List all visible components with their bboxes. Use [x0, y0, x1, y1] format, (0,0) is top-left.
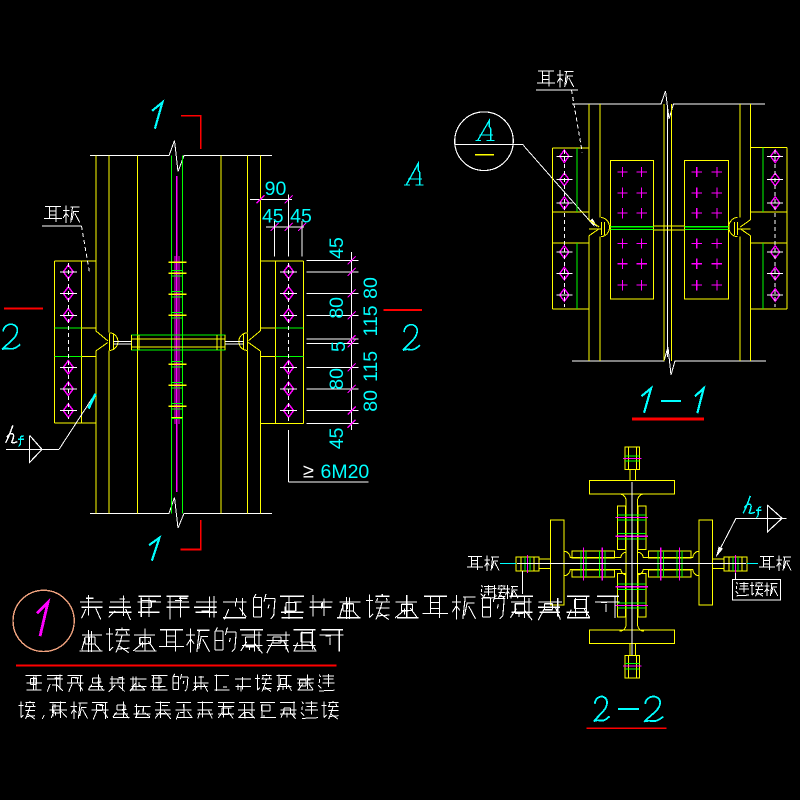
- svg-text:80: 80: [360, 277, 382, 299]
- svg-text:115: 115: [360, 305, 382, 336]
- svg-text:115: 115: [360, 351, 382, 382]
- svg-text:45: 45: [262, 206, 284, 228]
- svg-text:≥: ≥: [303, 461, 314, 483]
- svg-text:45: 45: [290, 206, 312, 228]
- svg-text:90: 90: [265, 178, 287, 200]
- svg-text:45: 45: [326, 427, 348, 449]
- svg-text:45: 45: [326, 237, 348, 259]
- svg-text:6M20: 6M20: [321, 461, 370, 483]
- svg-text:80: 80: [360, 390, 382, 412]
- svg-text:5: 5: [328, 341, 350, 352]
- svg-text:80: 80: [326, 368, 348, 390]
- svg-text:80: 80: [326, 297, 348, 319]
